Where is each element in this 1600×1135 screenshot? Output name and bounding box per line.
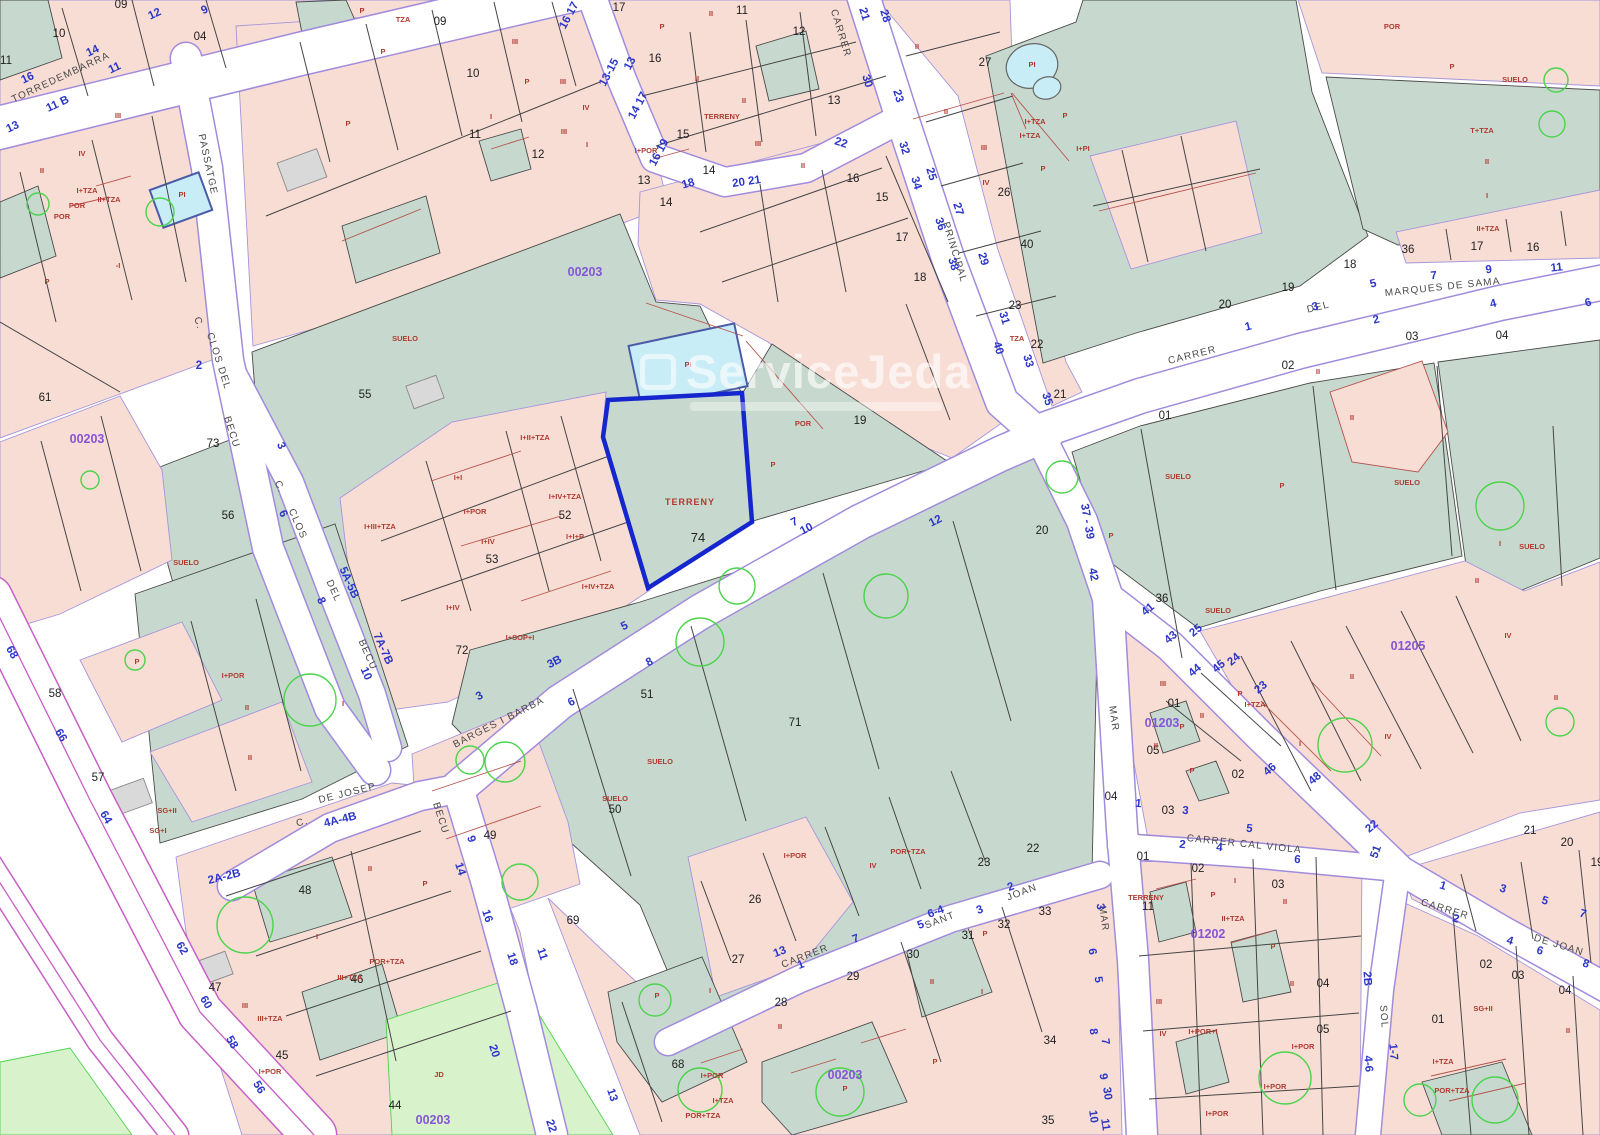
land-use-label: P [1237, 689, 1242, 698]
land-use-label: SUELO [647, 757, 673, 766]
parcel-number-label: 17 [613, 2, 626, 14]
parcel-number-label: 20 [1219, 299, 1232, 311]
parcel-number-label: 69 [567, 915, 580, 927]
land-use-label: II [778, 1022, 782, 1031]
land-use-label: POR+TZA [890, 847, 926, 856]
parcel-number-label: 58 [49, 688, 62, 700]
parcel-number-label: 68 [672, 1059, 685, 1071]
land-use-label: SG+II [157, 806, 176, 815]
parcel-number-label: 27 [732, 954, 745, 966]
parcel-number-label: 71 [789, 717, 802, 729]
land-use-label: II [1283, 897, 1287, 906]
block-code-label: 01205 [1391, 639, 1426, 653]
block-code-label: 00203 [70, 432, 105, 446]
land-use-label: I+POR [259, 1067, 282, 1076]
land-use-label: I+IV [446, 603, 460, 612]
land-use-label: I+IV+TZA [549, 492, 582, 501]
land-use-label: I+IV [481, 537, 495, 546]
land-use-label: I+TZA [1432, 1057, 1454, 1066]
parcel-number-label: 56 [222, 510, 235, 522]
parcel-number-label: 11 [469, 129, 481, 141]
land-use-label: POR+TZA [1434, 1086, 1470, 1095]
land-use-label: III [1156, 997, 1162, 1006]
parcel-number-label: 15 [677, 129, 690, 141]
street-name-label: SOL [1377, 1005, 1390, 1029]
land-use-label: II [1290, 979, 1294, 988]
parcel-number-label: 13 [638, 175, 651, 187]
parcel-number-label: 19 [1591, 857, 1600, 869]
land-use-label: I [586, 140, 588, 149]
parcel-number-label: 48 [299, 885, 312, 897]
block-code-label: 01202 [1191, 927, 1226, 941]
parcel-number-label: 01 [1432, 1014, 1445, 1026]
land-use-label: SUELO [173, 558, 199, 567]
land-use-label: III [561, 127, 567, 136]
parcel-number-label: 34 [1044, 1035, 1057, 1047]
land-use-label: I [342, 699, 344, 708]
parcel-number-label: 01 [1159, 410, 1172, 422]
land-use-label: POR [54, 212, 71, 221]
land-use-label: IV [982, 178, 989, 187]
land-use-label: I+POR [1264, 1082, 1287, 1091]
land-use-label: III+TZA [257, 1014, 283, 1023]
parcel-number-label: 10 [467, 68, 480, 80]
parcel-number-label: 02 [1282, 360, 1295, 372]
land-use-label: II [695, 74, 699, 83]
parcel-number-label: 33 [1039, 906, 1052, 918]
land-use-label: III [1160, 679, 1166, 688]
parcel-number-label: 32 [998, 919, 1011, 931]
parcel-number-label: 12 [532, 149, 545, 161]
parcel-number-label: 15 [876, 192, 889, 204]
parcel-number-label: 55 [359, 389, 372, 401]
land-use-label: P [654, 991, 659, 1000]
land-use-label: III [755, 139, 761, 148]
land-use-label: P [932, 1057, 937, 1066]
parcel-number-label: 04 [1496, 330, 1509, 342]
parcel-number-label: 30 [907, 949, 920, 961]
land-use-label: SUELO [1394, 478, 1420, 487]
parcel-number-label: 13 [828, 95, 841, 107]
land-use-label: IV [78, 149, 85, 158]
land-use-label: III [242, 1001, 248, 1010]
block-code-label: 00203 [416, 1113, 451, 1127]
parcel-number-label: 72 [456, 645, 469, 657]
parcel-number-label: 16 [847, 173, 860, 185]
land-use-label: I+TZA [712, 1096, 734, 1105]
land-use-label: I [490, 112, 492, 121]
parcel-number-label: 40 [1021, 239, 1034, 251]
house-number-label: 9 [1485, 264, 1493, 277]
parcel-number-label: 04 [1559, 985, 1572, 997]
land-use-label: SUELO [1165, 472, 1191, 481]
land-use-label: II [1200, 711, 1204, 720]
parcel-number-label: 04 [1317, 978, 1330, 990]
land-use-label: II [915, 42, 919, 51]
land-use-label: I+POR [222, 671, 245, 680]
parcel-number-label: 35 [1042, 1115, 1055, 1127]
land-use-label: III [560, 77, 566, 86]
parcel-number-label: 50 [609, 804, 622, 816]
parcel-number-label: 22 [1031, 339, 1044, 351]
land-use-label: JD [434, 1070, 444, 1079]
parcel-number-label: 29 [847, 971, 860, 983]
parcel-number-label: 28 [775, 997, 788, 1009]
house-number-label: 3 [1182, 805, 1190, 818]
parcel-number-label: 03 [1272, 879, 1285, 891]
land-use-label: TZA [1010, 334, 1025, 343]
land-use-label: P [770, 460, 775, 469]
parcel-number-label: 21 [1054, 389, 1067, 401]
land-use-label: P [1108, 531, 1113, 540]
highlighted-parcel-number: 74 [691, 530, 705, 545]
house-number-label: 7 [1430, 270, 1438, 283]
land-use-label: SUELO [392, 334, 418, 343]
land-use-label: P [359, 6, 364, 15]
parcel-number-label: 36 [1402, 244, 1415, 256]
parcel-number-label: 04 [1105, 791, 1118, 803]
land-use-label: P [134, 657, 139, 666]
land-use-label: I+II+TZA [520, 433, 550, 442]
land-use-label: T+TZA [1470, 126, 1494, 135]
land-use-label: I+POR [1206, 1109, 1229, 1118]
land-use-label: IV [869, 861, 876, 870]
land-use-label: I [1499, 539, 1501, 548]
land-use-label: -I [116, 261, 121, 270]
parcel-block [1298, 0, 1600, 86]
land-use-label: II [1350, 672, 1354, 681]
parcel-number-label: 14 [660, 197, 673, 209]
land-use-label: PI [178, 190, 185, 199]
parcel-number-label: 16 [1527, 242, 1540, 254]
land-use-label: TERRENY [704, 112, 740, 121]
parcel-number-label: 03 [1162, 805, 1175, 817]
parcel-number-label: 22 [1027, 843, 1040, 855]
house-number-label: 11 [1550, 261, 1564, 274]
parcel-number-label: 45 [276, 1050, 289, 1062]
house-number-label: 6 [1294, 854, 1302, 867]
land-use-label: I+SOP+I [506, 633, 535, 642]
land-use-label: P [1040, 164, 1045, 173]
house-number-label: 2B [1360, 971, 1373, 987]
parcel-number-label: 20 [1561, 837, 1574, 849]
block-code-label: 00203 [828, 1068, 863, 1082]
parcel-number-label: 23 [978, 857, 991, 869]
block-code-label: 00203 [568, 265, 603, 279]
parcel-number-label: 09 [115, 0, 128, 11]
land-use-label: P [1270, 942, 1275, 951]
parcel-number-label: 04 [194, 31, 207, 43]
parcel-number-label: 10 [53, 28, 66, 40]
land-use-label: III [512, 37, 518, 46]
parcel-number-label: 02 [1232, 769, 1245, 781]
house-number-label: 2 [1179, 839, 1187, 852]
land-use-label: I+POR [701, 1071, 724, 1080]
parcel-number-label: 27 [979, 57, 992, 69]
land-use-label: I+PI [1076, 144, 1090, 153]
house-number-label: 2 [196, 360, 202, 372]
land-use-label: II+TZA [97, 195, 121, 204]
land-use-label: POR [1384, 22, 1401, 31]
land-use-label: II [40, 166, 44, 175]
parcel-number-label: 01 [1168, 698, 1181, 710]
land-use-label: I+POR+I [1188, 1027, 1217, 1036]
land-use-label: SUELO [1519, 542, 1545, 551]
land-use-label: P [1062, 111, 1067, 120]
land-use-label: SUELO [1502, 75, 1528, 84]
land-use-label: II [944, 107, 948, 116]
parcel-number-label: 11 [0, 55, 12, 67]
parcel-number-label: 21 [1524, 825, 1537, 837]
land-use-label: II [930, 977, 934, 986]
land-use-label: P [380, 47, 385, 56]
house-number-label: 42 [1086, 567, 1100, 582]
parcel-number-label: 49 [484, 830, 497, 842]
parcel-number-label: 05 [1317, 1024, 1330, 1036]
parcel-number-label: 47 [209, 982, 222, 994]
parcel-number-label: 18 [1344, 259, 1357, 271]
land-use-label: II [248, 753, 252, 762]
land-use-label: P [1279, 481, 1284, 490]
parcel-number-label: 23 [1009, 300, 1022, 312]
parcel-number-label: 17 [896, 232, 909, 244]
highlighted-parcel-label: TERRENY [665, 497, 715, 507]
parcel-number-label: 16 [649, 53, 662, 65]
parcel-number-label: 09 [434, 16, 447, 28]
land-use-label: I+IV+TZA [582, 582, 615, 591]
land-use-label: POR [795, 419, 812, 428]
parcel-number-label: 20 [1036, 525, 1049, 537]
cadastral-map-canvas: TORREDEMBARRAPASSATGEC.CLOS DELBECUC.CLO… [0, 0, 1600, 1135]
land-use-label: II [1154, 741, 1158, 750]
land-use-label: P [659, 22, 664, 31]
parcel-number-label: 11 [1142, 901, 1154, 913]
parcel-number-label: 52 [559, 510, 572, 522]
land-use-label: SG+I [149, 826, 166, 835]
parcel-number-label: 57 [92, 772, 105, 784]
land-use-label: II [742, 96, 746, 105]
land-use-label: I [316, 932, 318, 941]
house-number-label: 11 [1098, 1118, 1112, 1132]
land-use-label: I+POR [464, 507, 487, 516]
land-use-label: I+I+P [566, 532, 584, 541]
land-use-label: P [1179, 722, 1184, 731]
land-use-label: POR [69, 201, 86, 210]
parcel-number-label: 19 [1282, 282, 1295, 294]
parcel-number-label: 26 [998, 187, 1011, 199]
land-use-label: P [345, 119, 350, 128]
land-use-label: P [982, 929, 987, 938]
parcel-number-label: 61 [39, 392, 52, 404]
parcel-number-label: 12 [793, 26, 806, 38]
land-use-label: SUELO [1205, 606, 1231, 615]
parcel-number-label: 17 [1471, 241, 1484, 253]
land-use-label: I+TZA [76, 186, 98, 195]
parcel-number-label: 03 [1512, 970, 1525, 982]
land-use-label: III+TZA [337, 973, 363, 982]
land-use-label: P [422, 879, 427, 888]
cadastral-map[interactable]: TORREDEMBARRAPASSATGEC.CLOS DELBECUC.CLO… [0, 0, 1600, 1135]
parcel-number-label: 14 [703, 165, 716, 177]
house-number-label: 1-7 [1386, 1043, 1399, 1060]
land-use-label: I [1234, 876, 1236, 885]
land-use-label: II [245, 703, 249, 712]
block-code-label: 01203 [1145, 716, 1180, 730]
house-number-label: 4-6 [1361, 1055, 1374, 1072]
land-use-label: II+TZA [1221, 914, 1245, 923]
land-use-label: IV [1159, 1029, 1166, 1038]
parcel-number-label: 03 [1406, 331, 1419, 343]
land-use-label: I+TZA [1019, 131, 1041, 140]
land-use-label: I+III+TZA [364, 522, 396, 531]
land-use-label: II [709, 9, 713, 18]
land-use-label: P [1189, 766, 1194, 775]
land-use-label: P [524, 77, 529, 86]
land-use-label: III [115, 111, 121, 120]
parcel-number-label: 26 [749, 894, 762, 906]
land-use-label: I+POR [784, 851, 807, 860]
land-use-label: I+TZA [1024, 117, 1046, 126]
land-use-label: I [709, 986, 711, 995]
parcel-number-label: 02 [1480, 959, 1493, 971]
parcel-number-label: 51 [641, 689, 654, 701]
land-use-label: I [1486, 191, 1488, 200]
parcel-number-label: 19 [854, 415, 867, 427]
land-use-label: II [1475, 576, 1479, 585]
land-use-label: PI [684, 360, 691, 369]
land-use-label: II [1350, 413, 1354, 422]
house-number-label: 30 [1100, 1086, 1114, 1100]
parcel-number-label: 53 [486, 554, 499, 566]
land-use-label: I+TZA [1244, 700, 1266, 709]
house-number-label: 10 [1086, 1109, 1100, 1123]
land-use-label: II [1566, 1026, 1570, 1035]
land-use-label: TERRENY [1128, 893, 1164, 902]
land-use-label: IV [1504, 631, 1511, 640]
land-use-label: II [1554, 693, 1558, 702]
parcel-number-label: 02 [1192, 863, 1205, 875]
land-use-label: SG+II [1473, 1004, 1492, 1013]
land-use-label: IV [1384, 732, 1391, 741]
land-use-label: II [1485, 157, 1489, 166]
land-use-label: II [368, 864, 372, 873]
parcel-number-label: 36 [1156, 593, 1169, 605]
parcel-number-label: 44 [389, 1100, 402, 1112]
land-use-label: POR+TZA [685, 1111, 721, 1120]
land-use-label: I+POR [1292, 1042, 1315, 1051]
land-use-label: III [981, 143, 987, 152]
land-use-label: II [801, 161, 805, 170]
land-use-label: I+I [454, 473, 463, 482]
parcel-number-label: 31 [962, 930, 975, 942]
land-use-label: SUELO [602, 794, 628, 803]
land-use-label: II+TZA [1476, 224, 1500, 233]
land-use-label: P [1449, 62, 1454, 71]
land-use-label: TZA [396, 15, 411, 24]
land-use-label: I+POR [635, 146, 658, 155]
land-use-label: II [1316, 367, 1320, 376]
parcel-number-label: 11 [736, 5, 748, 17]
land-use-label: I [1299, 739, 1301, 748]
parcel-number-label: 18 [914, 272, 927, 284]
land-use-label: IV [582, 103, 589, 112]
parcel-number-label: 73 [207, 438, 220, 450]
land-use-label: PI [1028, 60, 1035, 69]
parcel-number-label: 01 [1137, 851, 1150, 863]
land-use-label: P [1210, 890, 1215, 899]
land-use-label: I [981, 987, 983, 996]
land-use-label: P [44, 277, 49, 286]
land-use-label: POR+TZA [369, 957, 405, 966]
land-use-label: P [842, 1084, 847, 1093]
